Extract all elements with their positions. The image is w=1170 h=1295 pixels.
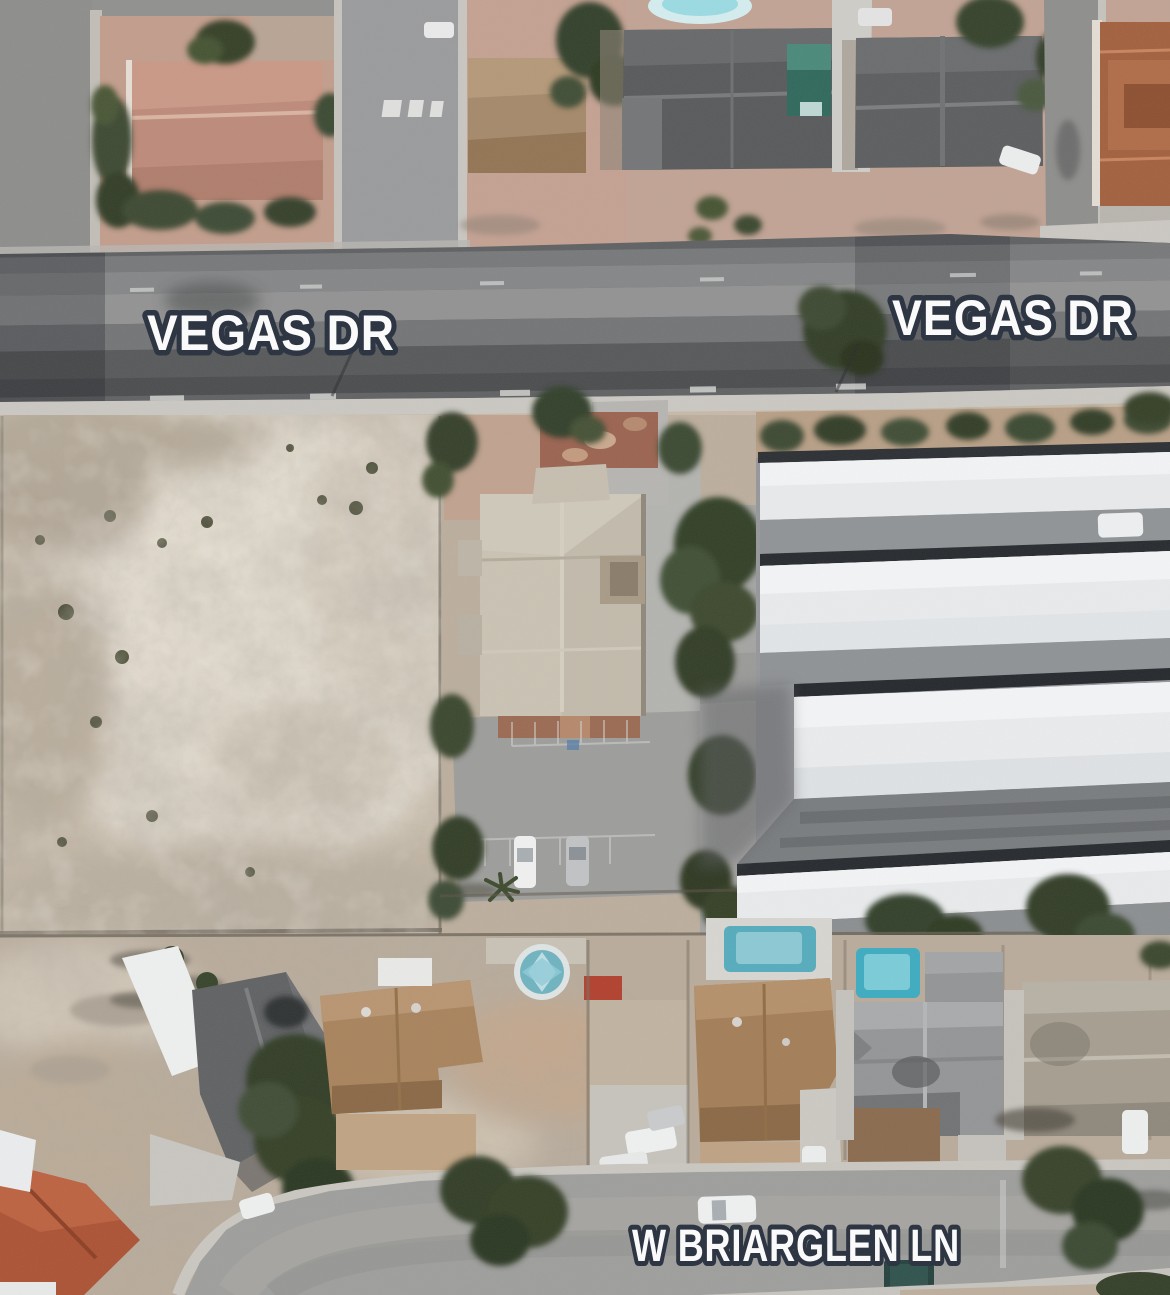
svg-text:VEGAS DR: VEGAS DR [892,290,1134,346]
svg-text:W BRIARGLEN LN: W BRIARGLEN LN [632,1220,960,1271]
svg-text:VEGAS DR: VEGAS DR [147,305,395,361]
